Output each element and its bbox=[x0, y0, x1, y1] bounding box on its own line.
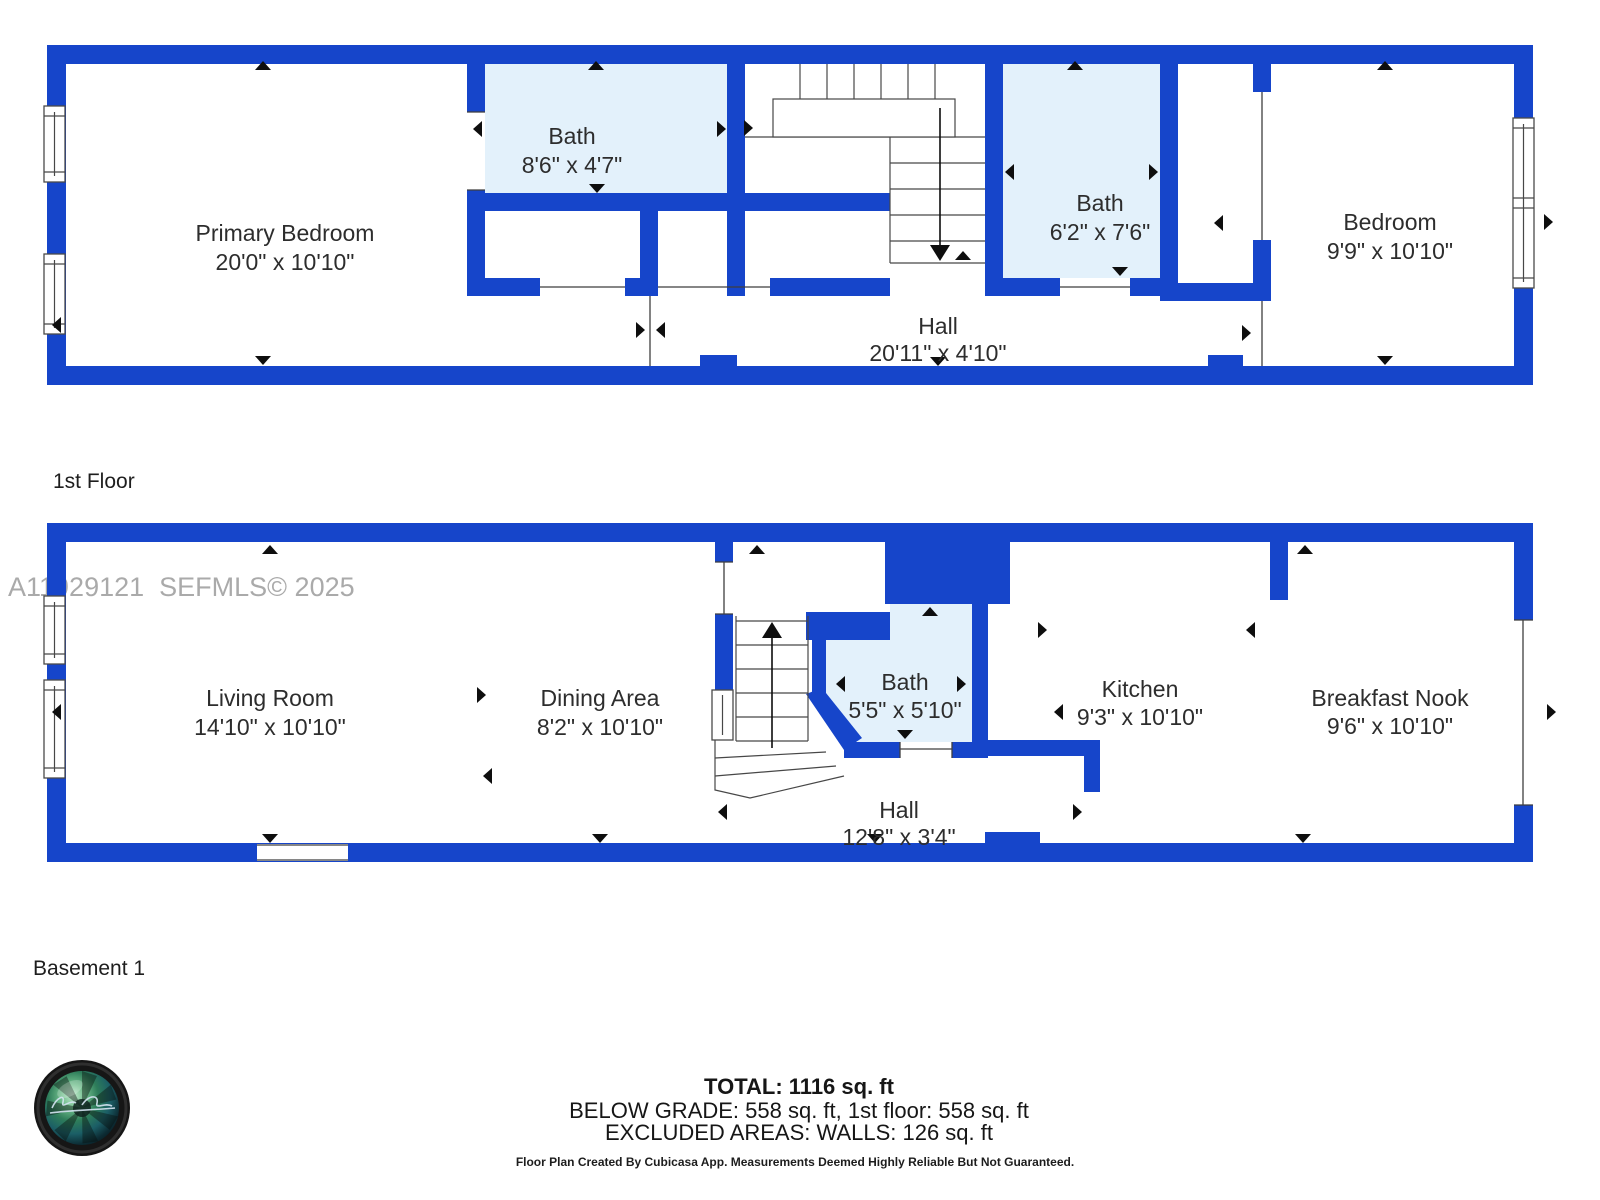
stair-direction-marker bbox=[955, 251, 971, 260]
floor-label-first: 1st Floor bbox=[53, 470, 135, 493]
photographer-logo bbox=[34, 1060, 130, 1156]
room-dims: 9'3" x 10'10" bbox=[1077, 704, 1203, 730]
room-name: Primary Bedroom bbox=[196, 220, 375, 246]
room-name: Bath bbox=[1076, 190, 1123, 216]
disclaimer: Floor Plan Created By Cubicasa App. Meas… bbox=[516, 1155, 1074, 1169]
room-dims: 14'10" x 10'10" bbox=[194, 714, 346, 740]
room-label-living-room: Living Room 14'10" x 10'10" bbox=[194, 685, 346, 740]
area-summary: TOTAL: 1116 sq. ft BELOW GRADE: 558 sq. … bbox=[516, 1074, 1074, 1169]
room-label-hall-2: Hall 12'8" x 3'4" bbox=[842, 797, 955, 850]
floor-plan-page: Primary Bedroom 20'0" x 10'10" Bath 8'6"… bbox=[0, 0, 1600, 1200]
first-floor-plan: Primary Bedroom 20'0" x 10'10" Bath 8'6"… bbox=[44, 45, 1553, 385]
room-dims: 8'2" x 10'10" bbox=[537, 714, 663, 740]
window-symbol-double bbox=[1513, 118, 1534, 288]
room-label-kitchen: Kitchen 9'3" x 10'10" bbox=[1077, 676, 1203, 730]
room-name: Bath bbox=[881, 669, 928, 695]
room-name: Breakfast Nook bbox=[1311, 685, 1469, 711]
window-symbol bbox=[44, 254, 65, 334]
room-dims: 12'8" x 3'4" bbox=[842, 824, 955, 850]
room-dims: 8'6" x 4'7" bbox=[522, 152, 623, 178]
window-symbol bbox=[44, 680, 65, 778]
room-dims: 20'0" x 10'10" bbox=[216, 249, 355, 275]
room-dims: 9'6" x 10'10" bbox=[1327, 713, 1453, 739]
window-symbol bbox=[44, 106, 65, 182]
room-name: Hall bbox=[879, 797, 919, 823]
window-symbol bbox=[712, 690, 733, 740]
room-name: Dining Area bbox=[541, 685, 660, 711]
room-name: Bath bbox=[548, 123, 595, 149]
room-label-dining-area: Dining Area 8'2" x 10'10" bbox=[537, 685, 663, 740]
room-label-bedroom: Bedroom 9'9" x 10'10" bbox=[1327, 209, 1453, 264]
staircase-first-floor bbox=[745, 64, 985, 263]
room-name: Bedroom bbox=[1343, 209, 1436, 235]
room-label-hall-1: Hall 20'11" x 4'10" bbox=[869, 313, 1006, 366]
room-dims: 9'9" x 10'10" bbox=[1327, 238, 1453, 264]
room-dims: 20'11" x 4'10" bbox=[869, 340, 1006, 366]
room-label-primary-bedroom: Primary Bedroom 20'0" x 10'10" bbox=[196, 220, 375, 275]
room-dims: 5'5" x 5'10" bbox=[848, 697, 961, 723]
total-area: TOTAL: 1116 sq. ft bbox=[704, 1074, 895, 1099]
room-name: Kitchen bbox=[1102, 676, 1179, 702]
room-name: Living Room bbox=[206, 685, 334, 711]
stair-up-arrow bbox=[762, 622, 782, 748]
first-floor-walls bbox=[47, 45, 1533, 385]
window-symbol bbox=[44, 596, 65, 664]
floor-plan-canvas: Primary Bedroom 20'0" x 10'10" Bath 8'6"… bbox=[0, 0, 1600, 1200]
excluded-areas: EXCLUDED AREAS: WALLS: 126 sq. ft bbox=[605, 1120, 993, 1145]
room-label-breakfast-nook: Breakfast Nook 9'6" x 10'10" bbox=[1311, 685, 1469, 739]
entry-opening bbox=[257, 844, 348, 861]
wall-opening bbox=[1514, 620, 1533, 805]
room-dims: 6'2" x 7'6" bbox=[1050, 219, 1151, 245]
room-name: Hall bbox=[918, 313, 958, 339]
floor-label-basement: Basement 1 bbox=[33, 957, 145, 980]
